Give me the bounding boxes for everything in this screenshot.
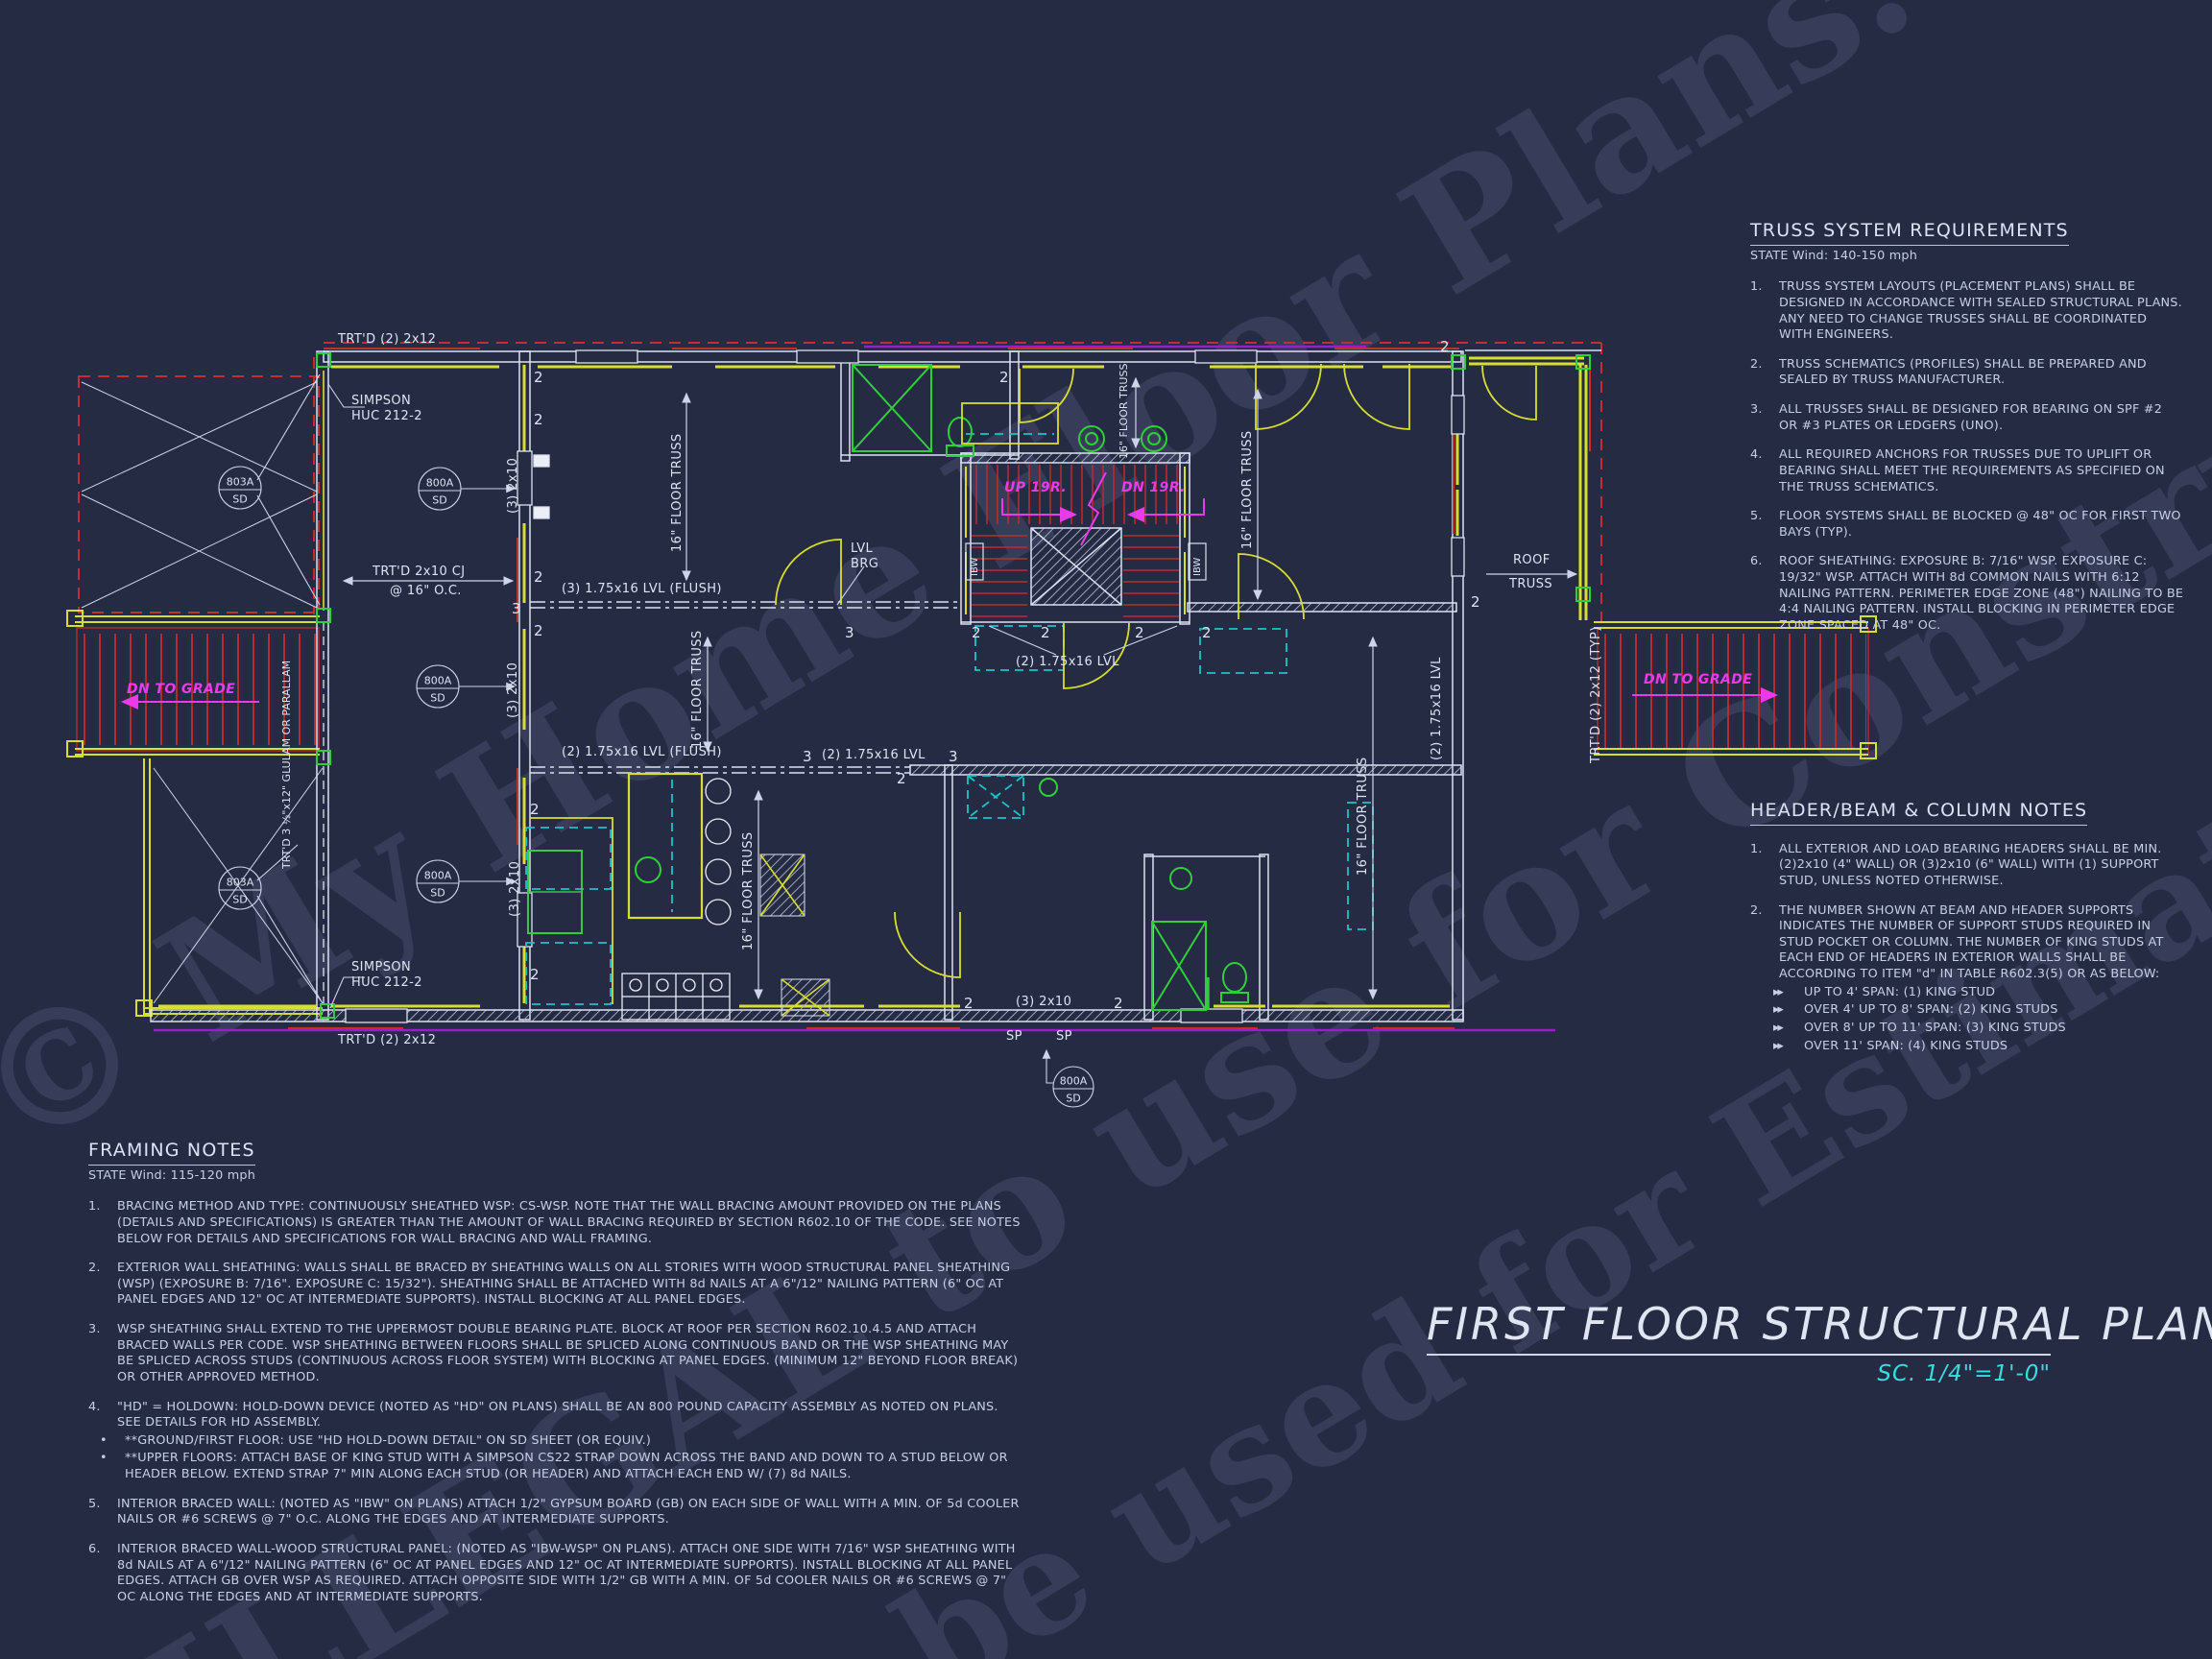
bullet-marker: • — [100, 1433, 115, 1450]
bullet-marker: • — [100, 1451, 115, 1482]
note-num: 2. — [1750, 357, 1767, 389]
stud-count: 3 — [949, 748, 958, 765]
stud-label: (3) 2x10 — [508, 861, 522, 917]
bullet-marker: ▸▸ — [1773, 985, 1794, 1001]
bullet-marker: ▸▸ — [1773, 1002, 1794, 1019]
callout-tag: 800A — [424, 870, 452, 882]
note-text: TRUSS SYSTEM LAYOUTS (PLACEMENT PLANS) S… — [1779, 279, 2184, 344]
stud-label: (3) 2x10 — [506, 458, 520, 514]
note-num: 1. — [1750, 279, 1767, 344]
stud-count: 2 — [999, 369, 1009, 386]
stud-count: 2 — [1135, 624, 1144, 641]
dn-to-grade-label: DN TO GRADE — [1644, 672, 1752, 687]
header-beam-notes: HEADER/BEAM & COLUMN NOTES 1.ALL EXTERIO… — [1750, 799, 2173, 1056]
callout-tag: SD — [432, 494, 446, 507]
stud-count: 2 — [1440, 338, 1450, 355]
note-num: 3. — [88, 1322, 106, 1386]
stud-count: 2 — [534, 622, 543, 639]
stud-count: 2 — [1471, 593, 1480, 611]
note-num: 3. — [1750, 402, 1767, 434]
callout-tag: SD — [430, 887, 445, 900]
stud-label: (3) 2x10 — [506, 662, 520, 718]
stud-count: 2 — [1041, 624, 1050, 641]
dn-to-grade-label: DN TO GRADE — [127, 682, 235, 697]
roof-truss-label: ROOF — [1513, 553, 1551, 567]
note-text: ALL REQUIRED ANCHORS FOR TRUSSES DUE TO … — [1779, 447, 2184, 495]
note-num: 1. — [88, 1199, 106, 1247]
callout-tag: 800A — [426, 477, 454, 490]
stud-label: (3) 2x10 — [1016, 995, 1071, 1009]
stud-count: 2 — [534, 369, 543, 386]
note-text: WSP SHEATHING SHALL EXTEND TO THE UPPERM… — [117, 1322, 1024, 1386]
note-num: 4. — [1750, 447, 1767, 495]
note-bullet: **GROUND/FIRST FLOOR: USE "HD HOLD-DOWN … — [125, 1433, 651, 1450]
note-bullet: OVER 8' UP TO 11' SPAN: (3) KING STUDS — [1804, 1021, 2066, 1037]
beam-label: TRT'D (2) 2x12 (TYP) — [1589, 626, 1603, 763]
lvl-label: (2) 1.75x16 LVL — [1016, 655, 1119, 669]
note-text: ROOF SHEATHING: EXPOSURE B: 7/16" WSP. E… — [1779, 554, 2184, 634]
hanger-label: SIMPSON HUC 212-2 — [351, 960, 444, 992]
note-text: FLOOR SYSTEMS SHALL BE BLOCKED @ 48" OC … — [1779, 509, 2184, 541]
callout-tag: 803A — [227, 476, 254, 489]
note-bullet: OVER 4' UP TO 8' SPAN: (2) KING STUDS — [1804, 1002, 2058, 1019]
truss-notes-wind: STATE Wind: 140-150 mph — [1750, 249, 2184, 265]
bullet-marker: ▸▸ — [1773, 1021, 1794, 1037]
note-text: "HD" = HOLDOWN: HOLD-DOWN DEVICE (NOTED … — [117, 1400, 1024, 1431]
bullet-marker: ▸▸ — [1773, 1039, 1794, 1055]
truss-notes-title: TRUSS SYSTEM REQUIREMENTS — [1750, 219, 2069, 246]
joist-label: TRT'D 2x10 CJ — [373, 565, 465, 579]
stair-up-label: UP 19R. — [1004, 480, 1067, 495]
framing-notes-wind: STATE Wind: 115-120 mph — [88, 1168, 1024, 1185]
sheet-title: FIRST FLOOR STRUCTURAL PLAN — [1427, 1298, 2051, 1356]
stud-count: 3 — [845, 624, 854, 641]
stud-count: 2 — [1202, 624, 1212, 641]
stair-dn-label: DN 19R. — [1121, 480, 1186, 495]
callout-tag: 803A — [227, 877, 254, 889]
stud-count: 3 — [512, 600, 521, 617]
note-text: TRUSS SCHEMATICS (PROFILES) SHALL BE PRE… — [1779, 357, 2184, 389]
floor-truss-label: 16" FLOOR TRUSS — [1118, 364, 1130, 459]
floor-truss-label: 16" FLOOR TRUSS — [1240, 430, 1255, 549]
framing-notes: FRAMING NOTES STATE Wind: 115-120 mph 1.… — [88, 1139, 1024, 1619]
header-notes-title: HEADER/BEAM & COLUMN NOTES — [1750, 799, 2087, 826]
note-bullet: OVER 11' SPAN: (4) KING STUDS — [1804, 1039, 2008, 1055]
roof-truss-label: TRUSS — [1509, 577, 1552, 591]
callout-tag: 800A — [424, 675, 452, 687]
note-text: INTERIOR BRACED WALL-WOOD STRUCTURAL PAN… — [117, 1542, 1024, 1606]
lvl-label: (2) 1.75x16 LVL — [1430, 657, 1444, 760]
floor-truss-label: 16" FLOOR TRUSS — [670, 433, 685, 552]
beam-label: TRT'D (2) 2x12 — [338, 332, 436, 347]
note-text: EXTERIOR WALL SHEATHING: WALLS SHALL BE … — [117, 1261, 1024, 1309]
note-bullet: **UPPER FLOORS: ATTACH BASE OF KING STUD… — [125, 1451, 1024, 1482]
note-text: ALL TRUSSES SHALL BE DESIGNED FOR BEARIN… — [1779, 402, 2184, 434]
stud-count: 2 — [1114, 995, 1123, 1012]
sp-label: SP — [1056, 1029, 1072, 1044]
note-text: THE NUMBER SHOWN AT BEAM AND HEADER SUPP… — [1779, 903, 2173, 983]
note-num: 4. — [88, 1400, 106, 1431]
ibw-label: IBW — [1192, 558, 1203, 576]
framing-notes-title: FRAMING NOTES — [88, 1139, 255, 1166]
callout-tag: SD — [232, 894, 247, 906]
note-num: 1. — [1750, 842, 1767, 890]
glulam-label: TRT'D 3 ½"x12" GLULAM OR PARALLAM — [280, 661, 293, 869]
note-num: 2. — [1750, 903, 1767, 983]
kitchen — [528, 774, 829, 1020]
note-text: ALL EXTERIOR AND LOAD BEARING HEADERS SH… — [1779, 842, 2173, 890]
floor-truss-label: 16" FLOOR TRUSS — [690, 630, 705, 749]
callout-tag: SD — [430, 692, 445, 705]
sp-label: SP — [1006, 1029, 1022, 1044]
stud-count: 2 — [530, 966, 540, 983]
blueprint-sheet: © My Home Floor Plans.com ILLEGAL to use… — [0, 0, 2212, 1659]
stud-count: 2 — [897, 770, 906, 787]
note-bullet: UP TO 4' SPAN: (1) KING STUD — [1804, 985, 1995, 1001]
note-text: BRACING METHOD AND TYPE: CONTINUOUSLY SH… — [117, 1199, 1024, 1247]
note-num: 5. — [88, 1497, 106, 1528]
stud-count: 3 — [803, 748, 812, 765]
title-block: FIRST FLOOR STRUCTURAL PLAN SC. 1/4"=1'-… — [1427, 1298, 2051, 1386]
sheet-scale: SC. 1/4"=1'-0" — [1427, 1361, 2051, 1386]
floor-truss-label: 16" FLOOR TRUSS — [1356, 757, 1370, 876]
note-num: 5. — [1750, 509, 1767, 541]
hanger-label: SIMPSON HUC 212-2 — [351, 394, 444, 425]
stud-count: 2 — [534, 411, 543, 428]
stud-count: 2 — [964, 995, 974, 1012]
note-num: 2. — [88, 1261, 106, 1309]
note-text: INTERIOR BRACED WALL: (NOTED AS "IBW" ON… — [117, 1497, 1024, 1528]
note-num: 6. — [1750, 554, 1767, 634]
red-wall-segments — [288, 349, 1590, 1028]
callout-tag: 800A — [1060, 1075, 1088, 1088]
stud-count: 2 — [534, 568, 543, 586]
truss-notes: TRUSS SYSTEM REQUIREMENTS STATE Wind: 14… — [1750, 219, 2184, 648]
floor-truss-label: 16" FLOOR TRUSS — [741, 831, 756, 950]
note-num: 6. — [88, 1542, 106, 1606]
stud-count: 2 — [530, 801, 540, 818]
lvl-label: (2) 1.75x16 LVL — [822, 748, 926, 762]
lvl-brg-label: LVL BRG — [851, 541, 889, 573]
stud-count: 2 — [972, 624, 981, 641]
callout-tag: SD — [1066, 1093, 1080, 1105]
callout-tag: SD — [232, 493, 247, 506]
joist-label: @ 16" O.C. — [390, 584, 462, 598]
lvl-label: (3) 1.75x16 LVL (FLUSH) — [562, 582, 722, 596]
ibw-label: IBW — [970, 558, 980, 576]
beam-label: TRT'D (2) 2x12 — [338, 1033, 436, 1047]
